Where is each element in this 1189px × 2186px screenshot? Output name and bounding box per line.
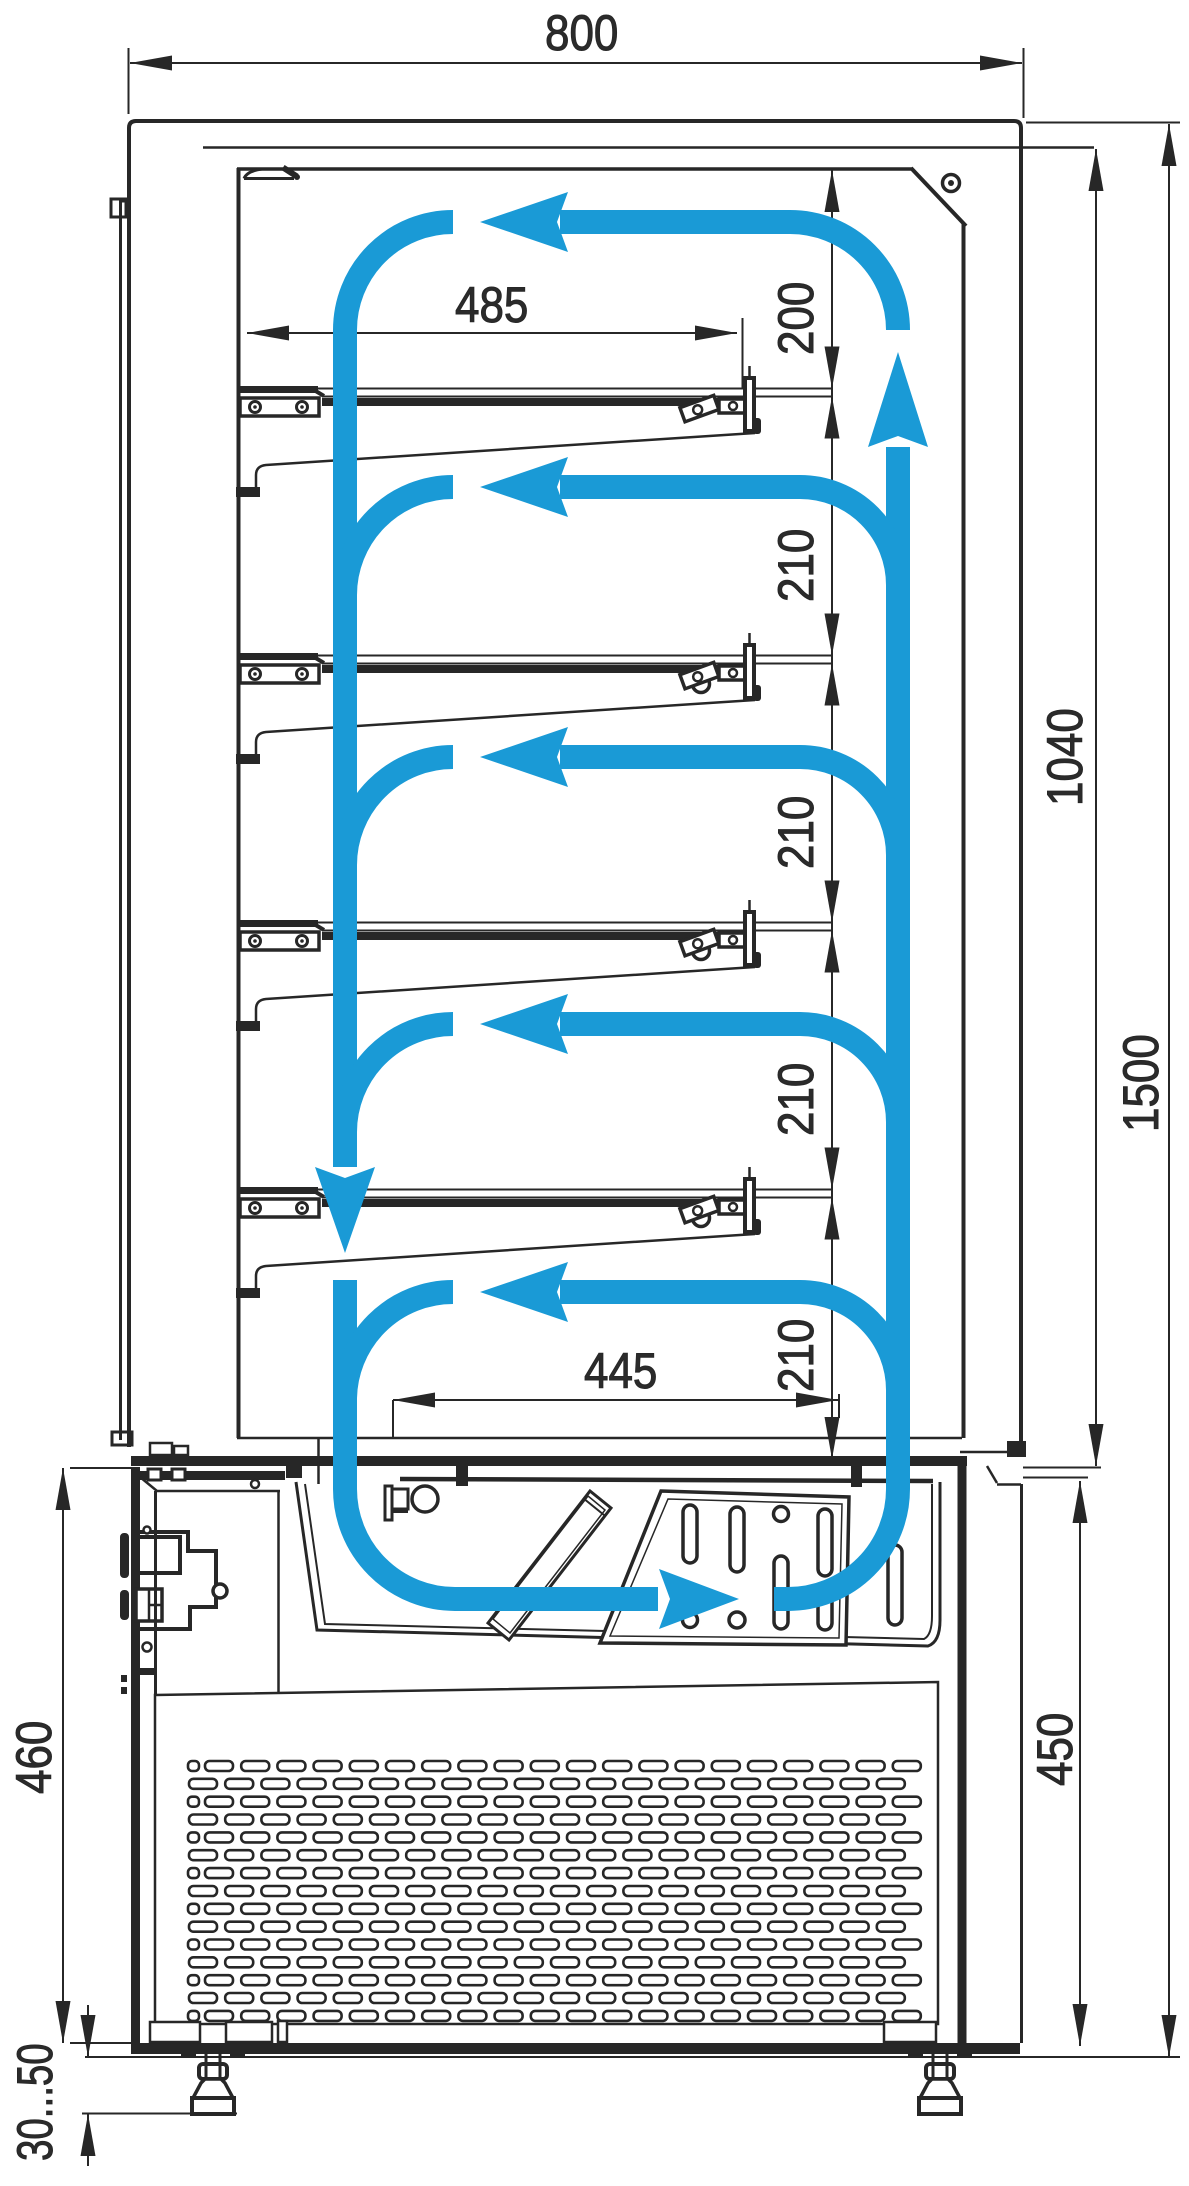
svg-text:210: 210 <box>767 796 823 869</box>
svg-text:445: 445 <box>584 1342 657 1398</box>
svg-text:30...50: 30...50 <box>8 2043 63 2161</box>
svg-text:800: 800 <box>545 4 618 60</box>
svg-text:210: 210 <box>767 1063 823 1136</box>
svg-text:1500: 1500 <box>1112 1034 1168 1132</box>
svg-text:460: 460 <box>5 1721 61 1794</box>
svg-text:200: 200 <box>767 282 823 355</box>
svg-text:1040: 1040 <box>1036 708 1092 806</box>
svg-text:485: 485 <box>455 276 528 332</box>
svg-text:210: 210 <box>767 529 823 602</box>
svg-text:450: 450 <box>1026 1713 1082 1786</box>
svg-text:210: 210 <box>767 1319 823 1392</box>
